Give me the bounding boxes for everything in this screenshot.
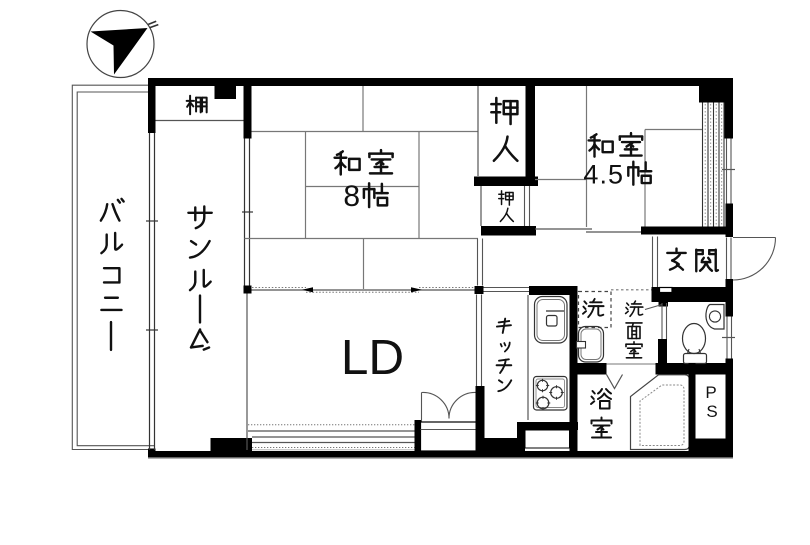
svg-text:4.5: 4.5 — [583, 160, 624, 190]
svg-text:8: 8 — [343, 180, 360, 213]
svg-text:LD: LD — [341, 330, 404, 385]
svg-text:P: P — [705, 383, 716, 402]
svg-text:S: S — [706, 402, 717, 421]
